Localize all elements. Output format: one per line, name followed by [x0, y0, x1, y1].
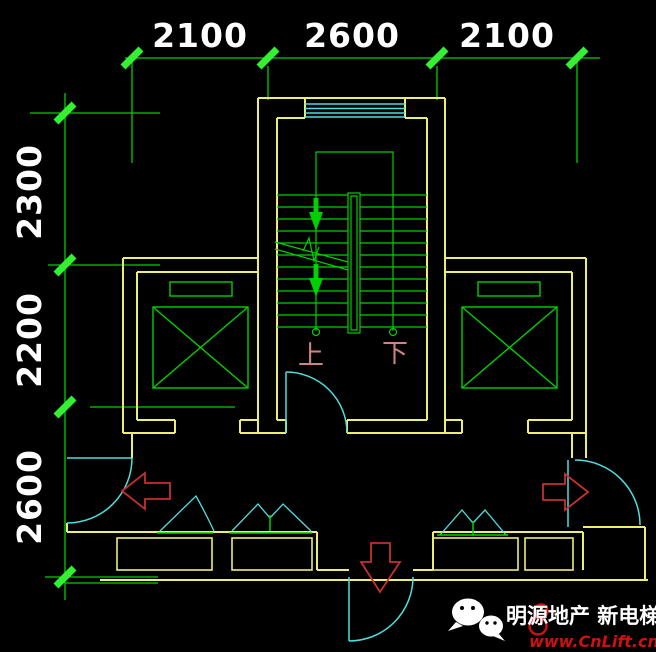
stair-up-label: 上: [298, 341, 324, 371]
counterweight-symbol: [478, 282, 540, 296]
door-swing-arc: [349, 577, 413, 641]
stair-tread-lines: [277, 195, 427, 327]
exit-arrow-right-icon: [543, 474, 588, 510]
bottom-exit-door: [349, 577, 413, 641]
dimension-label: 2600: [304, 16, 400, 55]
window-planter-boxes: [117, 538, 573, 570]
dimension-label: 2100: [459, 16, 555, 55]
floor-plan-drawing: 2100 2600 2100 2300 2200 2600: [0, 0, 656, 652]
top-dimension-row: 2100 2600 2100: [123, 16, 600, 163]
dimension-label: 2300: [10, 144, 49, 240]
exit-arrow-down-icon: [361, 543, 400, 592]
stairwell-door: [286, 372, 347, 433]
stair-handrail-inner: [351, 196, 357, 330]
stairwell-window-glazing: [305, 104, 405, 117]
door-swing-arc: [575, 460, 640, 525]
watermark: 明源地产 新电梯 www.CnLift.cn: [448, 599, 656, 652]
lobby-walls: [67, 433, 648, 580]
dimension-label: 2600: [10, 449, 49, 545]
dimension-label: 2100: [152, 16, 248, 55]
right-entry-door: [568, 460, 640, 527]
stair-direction-arrow-icon: [309, 198, 323, 231]
watermark-brand-text: 明源地产 新电梯: [506, 604, 656, 628]
planter-shrub-symbols: [157, 496, 508, 535]
counterweight-symbol: [170, 282, 232, 296]
stair-handrail: [348, 193, 360, 333]
stair-walk-line: [316, 152, 393, 331]
door-swing-arc: [286, 372, 347, 433]
stair-flights: [275, 152, 427, 336]
watermark-url-text: www.CnLift.cn: [529, 632, 656, 651]
wechat-icon: [448, 599, 505, 642]
stair-down-label: 下: [382, 339, 408, 369]
dimension-label: 2200: [10, 292, 49, 388]
right-elevator-symbol: [462, 282, 557, 388]
cad-floor-plan-canvas: 2100 2600 2100 2300 2200 2600: [0, 0, 656, 652]
stair-direction-arrow-icon: [309, 264, 323, 297]
left-elevator-symbol: [153, 282, 248, 388]
shrub-symbol: [160, 496, 214, 531]
shrub-symbol: [232, 504, 311, 531]
right-wing-walls: [445, 258, 586, 433]
